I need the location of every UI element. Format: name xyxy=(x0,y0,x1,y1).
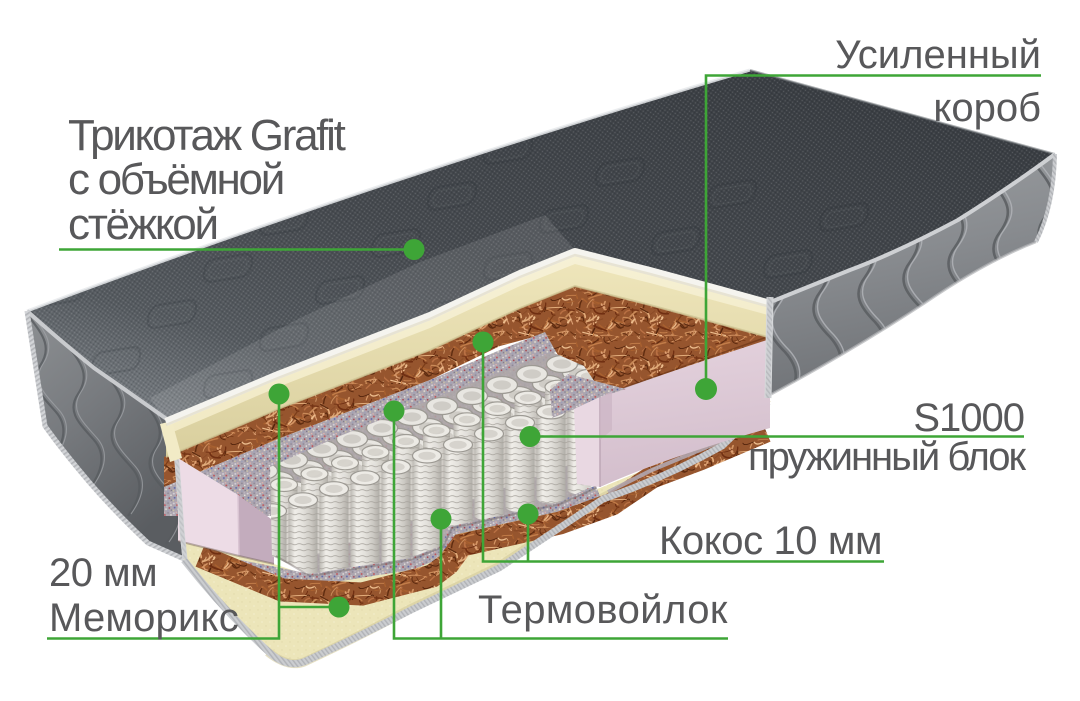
svg-text:S1000: S1000 xyxy=(913,396,1024,440)
svg-text:стёжкой: стёжкой xyxy=(68,200,217,249)
svg-text:с объёмной: с объёмной xyxy=(68,155,283,204)
svg-text:Термовойлок: Термовойлок xyxy=(478,588,728,632)
svg-text:короб: короб xyxy=(933,86,1041,130)
svg-text:Меморикс: Меморикс xyxy=(49,596,239,640)
svg-text:Усиленный: Усиленный xyxy=(835,33,1041,77)
svg-text:20 мм: 20 мм xyxy=(49,551,157,595)
svg-text:пружинный блок: пружинный блок xyxy=(748,435,1027,479)
svg-text:Трикотаж Grafit: Трикотаж Grafit xyxy=(68,111,346,160)
svg-text:Кокос 10 мм: Кокос 10 мм xyxy=(659,519,882,563)
